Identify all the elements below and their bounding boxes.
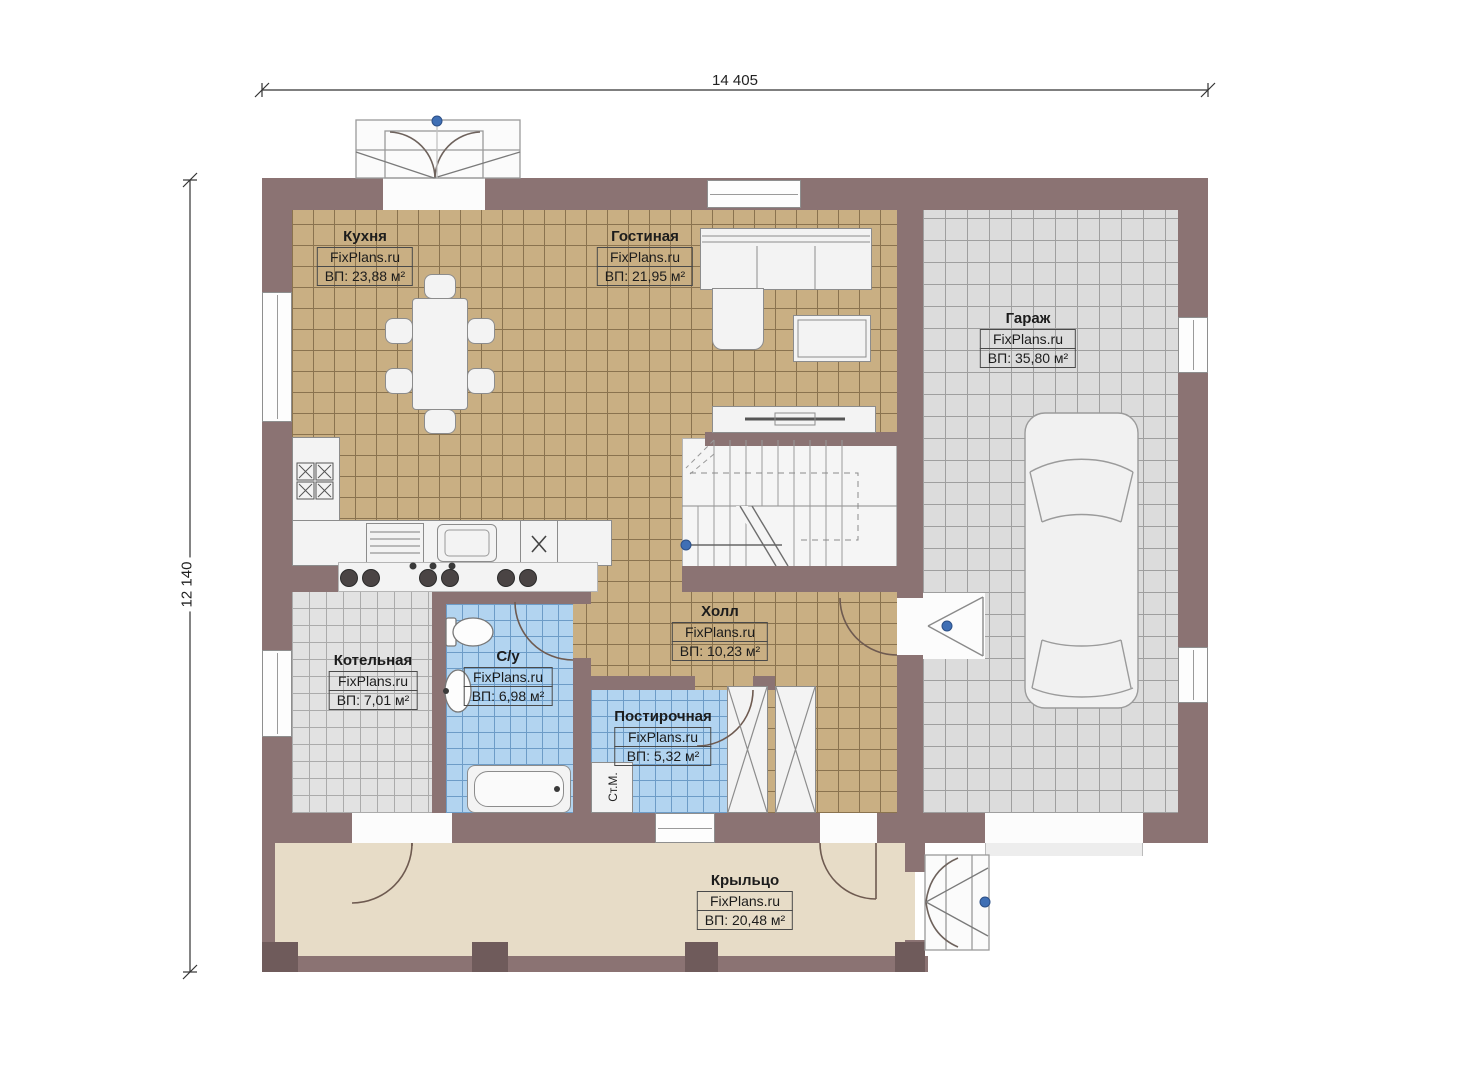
room-area: ВП: 23,88 м² [317, 266, 413, 286]
staircase [682, 438, 897, 568]
opening-kitchen-french-door [383, 178, 485, 210]
wall-laundry-top-left [591, 676, 695, 690]
room-name: Постирочная [614, 708, 711, 725]
porch-column-4 [895, 942, 925, 972]
boiler-equipment-band [338, 562, 598, 592]
chair-top [424, 274, 456, 299]
window-garage-right-1 [1178, 317, 1208, 373]
window-kitchen-left [262, 292, 292, 422]
porch-column-1 [262, 942, 298, 972]
room-name: Кухня [317, 228, 413, 245]
chair-bottom [424, 409, 456, 434]
wardrobe-1 [727, 686, 768, 813]
floor-porch [268, 843, 915, 964]
room-brand: FixPlans.ru [614, 727, 711, 747]
room-brand: FixPlans.ru [597, 247, 693, 267]
garage-gate-apron [985, 843, 1143, 856]
window-garage-right-2 [1178, 647, 1208, 703]
window-boiler-left [262, 650, 292, 737]
room-brand: FixPlans.ru [980, 329, 1076, 349]
opening-garage-gate [985, 813, 1143, 843]
room-area: ВП: 6,98 м² [464, 686, 553, 706]
wall-right [1178, 178, 1208, 843]
chair-right-2 [467, 368, 495, 394]
room-label-hall: Холл FixPlans.ru ВП: 10,23 м² [672, 603, 768, 661]
room-brand: FixPlans.ru [317, 247, 413, 267]
room-name: С/у [464, 648, 553, 665]
room-label-boiler: Котельная FixPlans.ru ВП: 7,01 м² [329, 652, 418, 710]
room-area: ВП: 35,80 м² [980, 348, 1076, 368]
bathtub-inner [474, 771, 564, 807]
hall-garage-door-panel [923, 593, 985, 659]
room-label-porch: Крыльцо FixPlans.ru ВП: 20,48 м² [697, 872, 793, 930]
dishwasher [366, 523, 424, 563]
opening-entry-door [820, 813, 877, 843]
wall-stairs-hall [682, 566, 897, 592]
room-brand: FixPlans.ru [464, 667, 553, 687]
porch-column-2 [472, 942, 508, 972]
wardrobe-2 [775, 686, 816, 813]
french-door-kitchen [356, 120, 520, 178]
tv-stand [712, 406, 876, 433]
room-name: Котельная [329, 652, 418, 669]
wall-boiler-bathroom [432, 600, 446, 813]
floor-garage [923, 210, 1178, 813]
washing-machine-label: Ст.М. [606, 772, 620, 802]
sofa [700, 228, 872, 290]
opening-hall-garage-door [897, 598, 923, 655]
floor-plan: 14 405 12 140 [0, 0, 1474, 1080]
room-name: Гостиная [597, 228, 693, 245]
room-name: Холл [672, 603, 768, 620]
sofa-chaise [712, 288, 764, 350]
room-label-garage: Гараж FixPlans.ru ВП: 35,80 м² [980, 310, 1076, 368]
wall-bathroom-hall [573, 658, 591, 813]
kitchen-cabinet-x [520, 520, 558, 566]
room-area: ВП: 7,01 м² [329, 690, 418, 710]
wall-garage-divider-lower [897, 655, 923, 813]
room-brand: FixPlans.ru [697, 891, 793, 911]
porch-wall-bottom [262, 956, 928, 972]
french-door-porch [925, 855, 989, 950]
wall-garage-divider-upper [897, 210, 923, 598]
room-label-bathroom: С/у FixPlans.ru ВП: 6,98 м² [464, 648, 553, 706]
room-name: Гараж [980, 310, 1076, 327]
dimension-height: 12 140 [178, 558, 195, 612]
room-brand: FixPlans.ru [329, 671, 418, 691]
room-area: ВП: 21,95 м² [597, 266, 693, 286]
wall-living-stairs [705, 432, 897, 446]
room-area: ВП: 20,48 м² [697, 910, 793, 930]
kitchen-counter-left [292, 437, 340, 521]
porch-column-3 [685, 942, 718, 972]
chair-left-1 [385, 318, 413, 344]
wall-left [262, 178, 292, 843]
room-label-living: Гостиная FixPlans.ru ВП: 21,95 м² [597, 228, 693, 286]
opening-boiler-porch-door [352, 813, 452, 843]
kitchen-sink [437, 524, 497, 562]
room-label-laundry: Постирочная FixPlans.ru ВП: 5,32 м² [614, 708, 711, 766]
porch-wall-right-upper [905, 843, 925, 872]
room-brand: FixPlans.ru [672, 622, 768, 642]
room-label-kitchen: Кухня FixPlans.ru ВП: 23,88 м² [317, 228, 413, 286]
window-laundry-bottom [655, 813, 715, 843]
chair-left-2 [385, 368, 413, 394]
room-area: ВП: 5,32 м² [614, 746, 711, 766]
chair-right-1 [467, 318, 495, 344]
window-living-top [707, 180, 801, 208]
dining-table [412, 298, 468, 410]
dimension-width: 14 405 [708, 72, 762, 89]
room-name: Крыльцо [697, 872, 793, 889]
coffee-table [793, 315, 871, 362]
room-area: ВП: 10,23 м² [672, 641, 768, 661]
